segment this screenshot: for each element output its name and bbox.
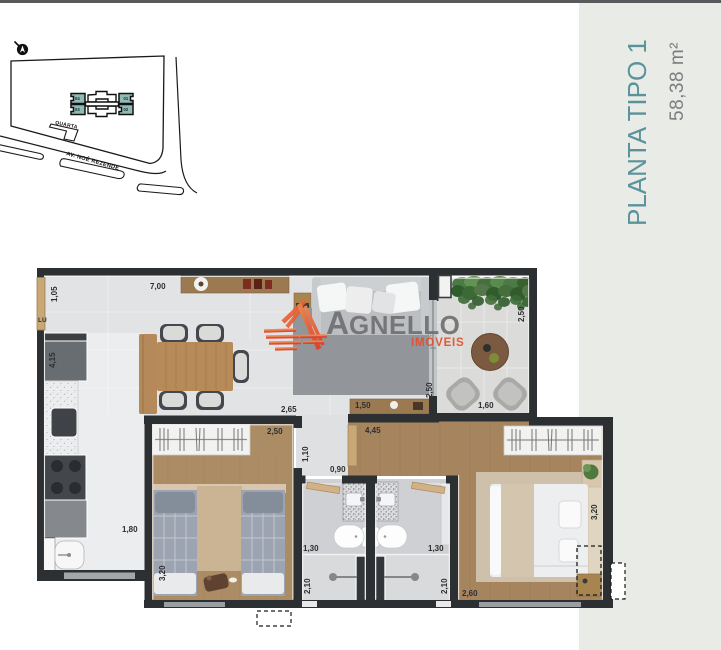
svg-text:A: A xyxy=(326,305,349,341)
svg-text:2,50: 2,50 xyxy=(267,427,283,436)
svg-text:GNELLO: GNELLO xyxy=(349,310,460,340)
svg-text:1,05: 1,05 xyxy=(50,286,59,302)
svg-text:1,80: 1,80 xyxy=(122,525,138,534)
svg-text:02: 02 xyxy=(124,107,129,112)
svg-text:04: 04 xyxy=(75,96,80,101)
svg-text:3,20: 3,20 xyxy=(590,504,599,520)
svg-text:03: 03 xyxy=(75,107,80,112)
svg-text:1,30: 1,30 xyxy=(428,544,444,553)
svg-text:2,50: 2,50 xyxy=(517,306,526,322)
svg-text:PLANTA TIPO 1: PLANTA TIPO 1 xyxy=(622,39,652,226)
svg-text:0,90: 0,90 xyxy=(330,465,346,474)
svg-text:7,00: 7,00 xyxy=(150,282,166,291)
svg-text:1,60: 1,60 xyxy=(478,401,494,410)
svg-text:4,15: 4,15 xyxy=(48,352,57,368)
svg-text:2,50: 2,50 xyxy=(425,382,434,398)
svg-text:4,45: 4,45 xyxy=(365,426,381,435)
svg-text:3,20: 3,20 xyxy=(158,565,167,581)
svg-text:58,38 m²: 58,38 m² xyxy=(667,42,688,121)
svg-text:1,30: 1,30 xyxy=(303,544,319,553)
svg-text:LU: LU xyxy=(38,317,47,324)
svg-text:1,10: 1,10 xyxy=(301,446,310,462)
svg-text:2,60: 2,60 xyxy=(462,589,478,598)
svg-text:2,65: 2,65 xyxy=(281,405,297,414)
svg-text:2,10: 2,10 xyxy=(303,578,312,594)
svg-text:IMÓVEIS: IMÓVEIS xyxy=(411,336,465,349)
svg-text:2,10: 2,10 xyxy=(440,578,449,594)
svg-text:01: 01 xyxy=(124,96,129,101)
svg-text:1,50: 1,50 xyxy=(355,401,371,410)
